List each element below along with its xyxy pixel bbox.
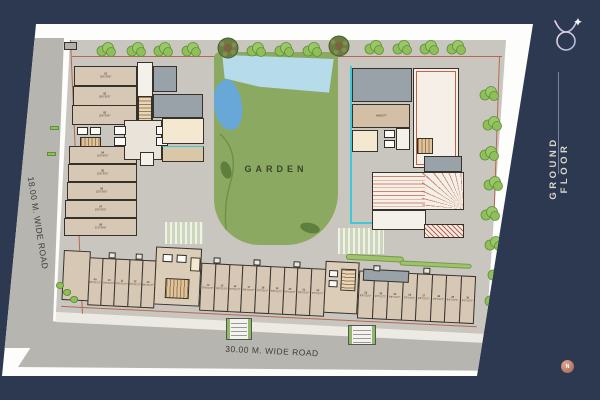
entrance-steps [226,318,252,340]
shop-label: 0519'6"X9'0" [97,170,108,176]
shop-label: 278'6"X12'2" [418,294,430,300]
lift-box [114,126,126,135]
duct-box [293,261,300,267]
shop-unit: 0118'6"X9'6" [74,66,137,86]
shop-label: 0720'6"X9'0" [95,206,106,212]
staircase [165,278,190,299]
amenity-room [190,257,201,271]
shop-label: 118'6"X12'2" [116,280,128,286]
lift-box [162,254,172,262]
shop-label: 0218'6"X9'0" [99,93,110,99]
shop-label: 0821'0"X9'6" [95,224,106,230]
shop-label: 218'6"X12'2" [298,289,310,295]
plan-sheet: 18.00 M. WIDE ROAD 30.00 M. WIDE ROAD GA… [0,0,600,400]
ramp-fan [422,173,463,209]
steps-treads [231,320,247,338]
shop-label: 238'6"X12'2" [360,292,372,298]
service-room [153,66,177,92]
paving-stripes [338,228,384,254]
duct-box [136,254,143,260]
duct-box [109,252,116,258]
utility-room [64,42,77,50]
shop-unit: 0821'0"X9'6" [64,218,137,236]
taurus-logo-icon [548,14,586,58]
shop-unit: 138'6"X12'2" [140,260,157,309]
shop-label: 209'0"X12'2" [284,288,296,294]
duct-box [373,265,380,271]
shop-label: 198'6"X12'2" [271,287,283,293]
floor-title: GROUND FLOOR [548,108,570,228]
steps-treads [353,327,371,343]
shop-label: 098'6"X12'2" [90,278,102,284]
lift-box [328,280,337,287]
shop-label: 129'0"X12'2" [129,280,141,286]
bush-icon [63,289,71,296]
compass-badge: N [561,360,574,373]
lift-box [114,137,126,146]
green-strip [47,152,56,156]
shop-label: 309'6"X12'2" [461,297,473,303]
lift-box [384,140,395,148]
amenity-room [162,118,204,144]
shop-unit: 0519'6"X9'0" [68,164,137,182]
service-room [372,210,426,230]
shop-label: 138'6"X12'2" [142,281,154,287]
lift-box [77,127,88,135]
shop-label: 258'6"X12'2" [389,293,401,299]
north-arrow-icon: ↑ [500,330,505,340]
shop-label: 0318'6"X9'6" [99,112,110,118]
lift-box [176,255,186,263]
amenity-room [352,130,378,152]
green-strip [372,326,375,344]
amenity-room: AMENITY [352,104,410,128]
shop-unit: 0218'6"X9'0" [73,86,137,106]
staircase [80,137,101,147]
toilet-room [140,152,154,166]
lift-lobby [323,261,359,315]
shop-label: 0620'0"X9'0" [96,188,107,194]
paving-stripes [165,222,203,244]
shop-unit: 229'0"X12'2" [309,268,326,317]
lift-box [329,270,338,277]
title-divider-line [558,72,559,174]
shop-label: 169'0"X12'2" [229,285,241,291]
lift-shaft [396,128,410,150]
green-strip [248,319,251,339]
room-label: AMENITY [375,115,386,118]
shop-unit: 0720'6"X9'0" [65,200,137,218]
garden-label: GARDEN [214,164,338,174]
shop-label: 289'0"X12'2" [432,295,444,301]
duct-box [253,259,260,265]
service-room [153,94,203,118]
floor-plan-page: 18.00 M. WIDE ROAD 30.00 M. WIDE ROAD GA… [0,0,600,400]
shop-label: 149'0"X12'2" [202,284,214,290]
shop-label: 178'6"X12'2" [243,286,255,292]
green-strip [227,319,230,339]
shop-unit: 309'6"X12'2" [458,275,476,324]
green-strip [50,126,59,130]
service-room [363,269,410,283]
garden-area: GARDEN [214,52,338,245]
shop-label: 298'6"X12'2" [447,296,459,302]
entrance-steps [348,325,376,345]
green-strip [349,326,352,344]
office-room [162,146,204,162]
lift-lobby [153,247,202,307]
staircase [138,96,152,122]
shop-label: 0118'6"X9'6" [100,73,111,79]
shop-label: 158'6"X12'2" [216,285,228,291]
lift-box [90,127,101,135]
garden-path-icon [214,52,338,245]
bush-icon [56,282,64,289]
shop-label: 269'0"X12'2" [403,294,415,300]
shop-label: 109'0"X12'2" [103,279,115,285]
service-room [352,68,412,102]
ramp-staircase [372,172,464,210]
hatched-area [424,224,464,238]
staircase [417,138,433,154]
bush-icon [70,296,78,303]
lift-box [384,130,395,138]
shop-label: 189'0"X12'2" [257,287,269,293]
shop-label: 249'0"X12'2" [374,292,386,298]
service-room [424,156,462,172]
shop-label: 229'0"X12'2" [312,289,324,295]
duct-box [423,268,430,274]
duct-box [213,257,220,263]
shop-unit: 0620'0"X9'0" [67,182,138,200]
ramp-treads [373,173,425,209]
shop-label: 0419'0"X9'0" [97,152,108,158]
staircase [340,269,356,292]
